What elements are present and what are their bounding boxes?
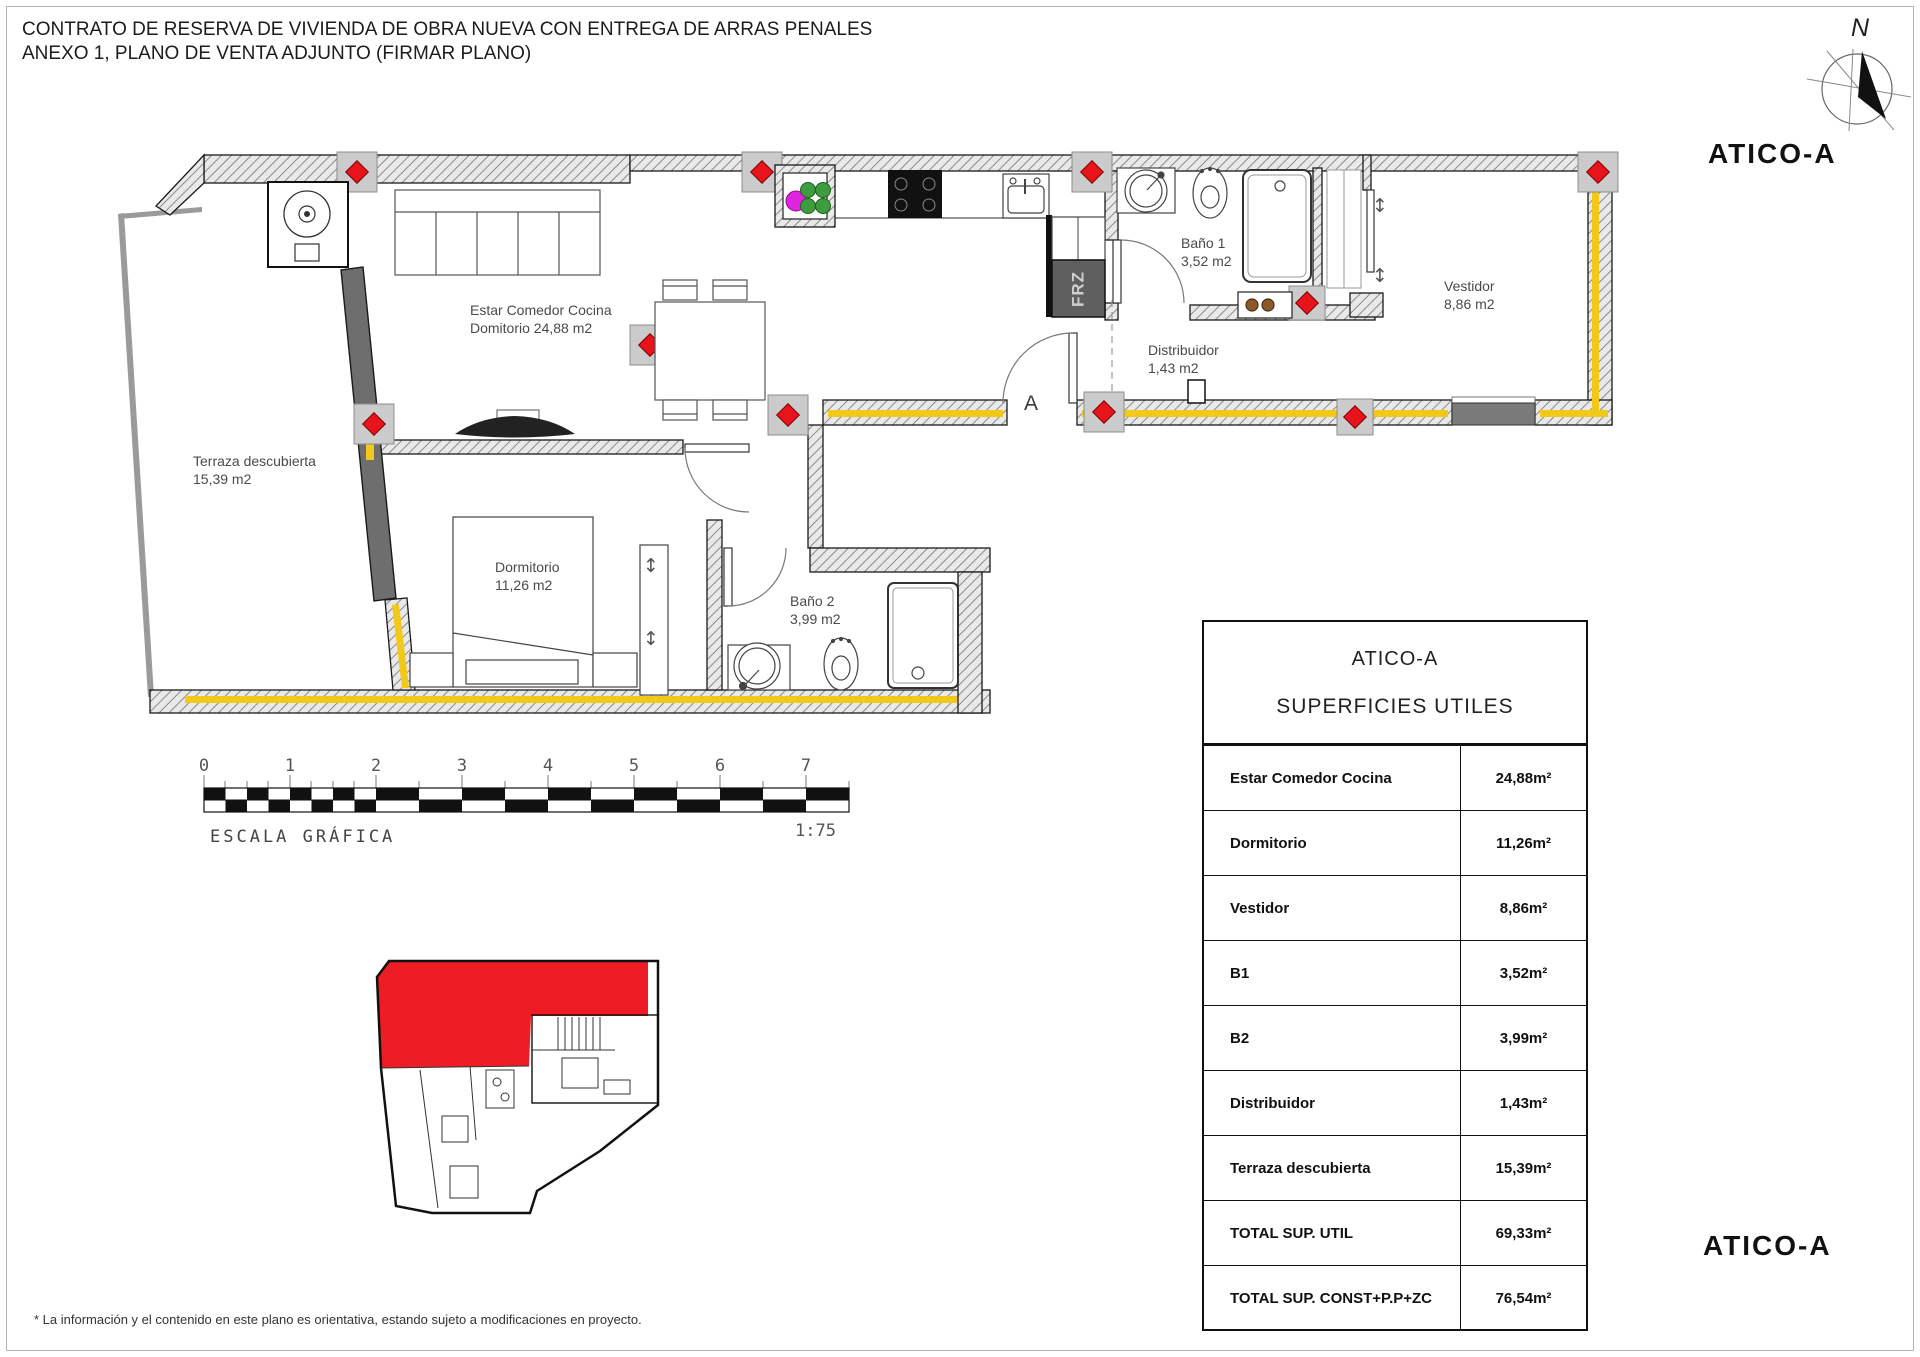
row-label: B1 xyxy=(1204,941,1460,1005)
dining-table xyxy=(655,280,765,420)
sliding-door xyxy=(1452,397,1535,425)
sofa xyxy=(395,190,600,275)
bedroom-door-arc xyxy=(685,448,749,512)
wardrobe-arrow-icon: ↕ xyxy=(643,628,659,650)
entrance-label: A xyxy=(1024,392,1038,416)
table-row: Distribuidor 1,43m² xyxy=(1204,1070,1586,1135)
room-label-estar: Estar Comedor Cocina Domitorio 24,88 m2 xyxy=(470,301,612,337)
row-label: Dormitorio xyxy=(1204,811,1460,875)
room-area: 11,26 m2 xyxy=(495,576,560,594)
scale-tick-label: 7 xyxy=(801,756,811,776)
bedroom-door-leaf xyxy=(685,444,749,452)
room-area: 15,39 m2 xyxy=(193,470,316,488)
bedroom-furniture xyxy=(410,517,668,695)
room-area: 8,86 m2 xyxy=(1444,295,1495,313)
bath2-door-leaf xyxy=(724,548,732,606)
row-value: 11,26m² xyxy=(1460,811,1586,875)
surface-table-header: ATICO-A SUPERFICIES UTILES xyxy=(1204,622,1586,745)
wall-bedroom-top xyxy=(378,440,683,454)
vestidor-wardrobe xyxy=(1327,170,1361,288)
scale-tick-label: 2 xyxy=(371,756,381,776)
hob-icon xyxy=(888,170,942,218)
surface-table-subtitle: SUPERFICIES UTILES xyxy=(1204,671,1586,719)
floor-plan-canvas: FRZ xyxy=(0,0,1920,1357)
scale-tick-label: 4 xyxy=(543,756,553,776)
nightstand-icon xyxy=(593,653,637,687)
table-row: Estar Comedor Cocina 24,88m² xyxy=(1204,745,1586,810)
chair-icon xyxy=(663,280,697,300)
surface-table-title: ATICO-A xyxy=(1204,622,1586,671)
nightstand-icon xyxy=(410,653,453,687)
room-label-bano1: Baño 1 3,52 m2 xyxy=(1181,234,1232,270)
room-area: 3,99 m2 xyxy=(790,610,841,628)
wardrobe-arrow-icon: ↕ xyxy=(1372,265,1388,287)
hinge-dot-icon xyxy=(1262,299,1274,311)
room-label-distribuidor: Distribuidor 1,43 m2 xyxy=(1148,341,1219,377)
location-key-plan xyxy=(377,961,658,1213)
unit-title-bottom: ATICO-A xyxy=(1703,1230,1832,1262)
wall-hall-step xyxy=(808,425,823,548)
kitchen xyxy=(775,165,1050,227)
room-name: Baño 2 xyxy=(790,592,841,610)
table-row: B2 3,99m² xyxy=(1204,1005,1586,1070)
wall-right xyxy=(1588,168,1612,425)
scale-tick-label: 5 xyxy=(629,756,639,776)
wardrobe-arrow-icon: ↕ xyxy=(1372,195,1388,217)
chair-icon xyxy=(663,400,697,420)
room-name: Estar Comedor Cocina xyxy=(470,301,612,319)
row-value: 69,33m² xyxy=(1460,1201,1586,1265)
bath1-door-leaf xyxy=(1113,240,1121,303)
row-label: Terraza descubierta xyxy=(1204,1136,1460,1200)
row-value: 24,88m² xyxy=(1460,746,1586,810)
row-value: 1,43m² xyxy=(1460,1071,1586,1135)
unit-title-top: ATICO-A xyxy=(1708,138,1837,170)
tv-icon xyxy=(455,416,575,438)
surface-table: ATICO-A SUPERFICIES UTILES Estar Comedor… xyxy=(1202,620,1588,1331)
table-row: Dormitorio 11,26m² xyxy=(1204,810,1586,875)
room-area: Domitorio 24,88 m2 xyxy=(470,319,612,337)
wall-bath2-top xyxy=(810,548,990,572)
chair-icon xyxy=(713,400,747,420)
disclaimer-note: * La información y el contenido en este … xyxy=(34,1312,642,1327)
wall-top-corner xyxy=(156,155,204,215)
compass-north-label: N xyxy=(1851,14,1869,43)
scale-caption: ESCALA GRÁFICA xyxy=(210,827,395,847)
scale-bar xyxy=(204,775,849,812)
scale-ratio: 1:75 xyxy=(795,821,836,841)
wardrobe-arrow-icon: ↕ xyxy=(643,555,659,577)
hinge-dot-icon xyxy=(1246,299,1258,311)
table-row: Vestidor 8,86m² xyxy=(1204,875,1586,940)
scale-tick-label: 0 xyxy=(199,756,209,776)
table-row: B1 3,52m² xyxy=(1204,940,1586,1005)
wall-vestidor-stub xyxy=(1363,155,1371,190)
row-value: 3,52m² xyxy=(1460,941,1586,1005)
terrace-walls xyxy=(118,207,202,697)
room-name: Distribuidor xyxy=(1148,341,1219,359)
row-label: Estar Comedor Cocina xyxy=(1204,746,1460,810)
entrance-door-leaf xyxy=(1069,333,1077,403)
room-area: 3,52 m2 xyxy=(1181,252,1232,270)
row-value: 8,86m² xyxy=(1460,876,1586,940)
row-label: TOTAL SUP. UTIL xyxy=(1204,1201,1460,1265)
wall-step xyxy=(1188,380,1205,403)
room-name: Baño 1 xyxy=(1181,234,1232,252)
chair-icon xyxy=(713,280,747,300)
row-label: Distribuidor xyxy=(1204,1071,1460,1135)
freezer-label: FRZ xyxy=(1068,271,1087,307)
fridge-unit: FRZ xyxy=(1046,215,1105,317)
bath1-door-arc xyxy=(1121,240,1184,303)
wall-bath1-right xyxy=(1313,168,1322,290)
laundry-closet xyxy=(268,182,348,267)
wall-bath2-right xyxy=(958,572,982,713)
table-row: TOTAL SUP. CONST+P.P+ZC 76,54m² xyxy=(1204,1265,1586,1330)
room-label-vestidor: Vestidor 8,86 m2 xyxy=(1444,277,1495,313)
row-value: 15,39m² xyxy=(1460,1136,1586,1200)
row-label: B2 xyxy=(1204,1006,1460,1070)
wall-bedroom-right xyxy=(707,520,722,690)
kitchen-sink-icon xyxy=(1003,174,1049,218)
bathroom2-fixtures xyxy=(728,583,958,690)
row-label: TOTAL SUP. CONST+P.P+ZC xyxy=(1204,1266,1460,1330)
row-value: 3,99m² xyxy=(1460,1006,1586,1070)
room-label-bano2: Baño 2 3,99 m2 xyxy=(790,592,841,628)
room-name: Dormitorio xyxy=(495,558,560,576)
scale-tick-label: 1 xyxy=(285,756,295,776)
room-label-terraza: Terraza descubierta 15,39 m2 xyxy=(193,452,316,488)
table-row: TOTAL SUP. UTIL 69,33m² xyxy=(1204,1200,1586,1265)
row-label: Vestidor xyxy=(1204,876,1460,940)
room-label-dormitorio: Dormitorio 11,26 m2 xyxy=(495,558,560,594)
wall-top-left xyxy=(204,155,630,183)
mini-stairs-icon xyxy=(532,1017,615,1050)
bath2-door-arc xyxy=(728,548,786,606)
row-value: 76,54m² xyxy=(1460,1266,1586,1330)
wall-vestidor-corner xyxy=(1350,293,1383,317)
room-area: 1,43 m2 xyxy=(1148,359,1219,377)
tv-console xyxy=(455,410,575,438)
table-row: Terraza descubierta 15,39m² xyxy=(1204,1135,1586,1200)
scale-tick-label: 6 xyxy=(715,756,725,776)
room-name: Terraza descubierta xyxy=(193,452,316,470)
room-name: Vestidor xyxy=(1444,277,1495,295)
scale-tick-label: 3 xyxy=(457,756,467,776)
compass-icon xyxy=(1807,49,1911,131)
